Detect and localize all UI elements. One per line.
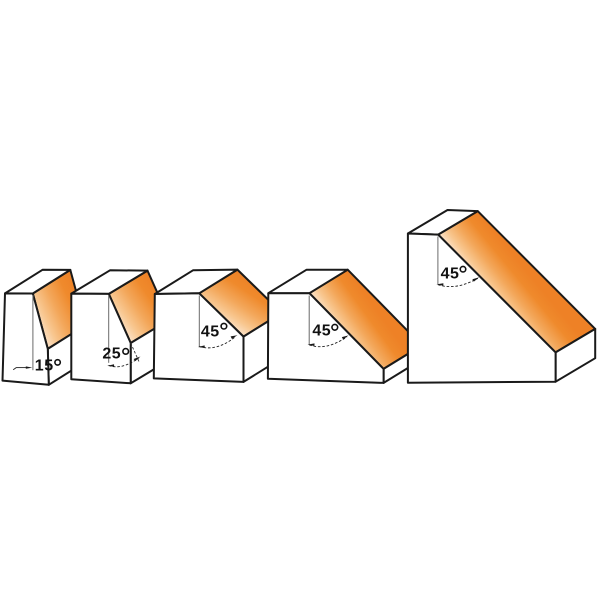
svg-text:45: 45 bbox=[441, 266, 460, 283]
svg-text:15: 15 bbox=[35, 358, 54, 375]
svg-text:45: 45 bbox=[312, 323, 331, 340]
svg-text:25: 25 bbox=[102, 346, 121, 363]
svg-text:45: 45 bbox=[201, 324, 220, 341]
